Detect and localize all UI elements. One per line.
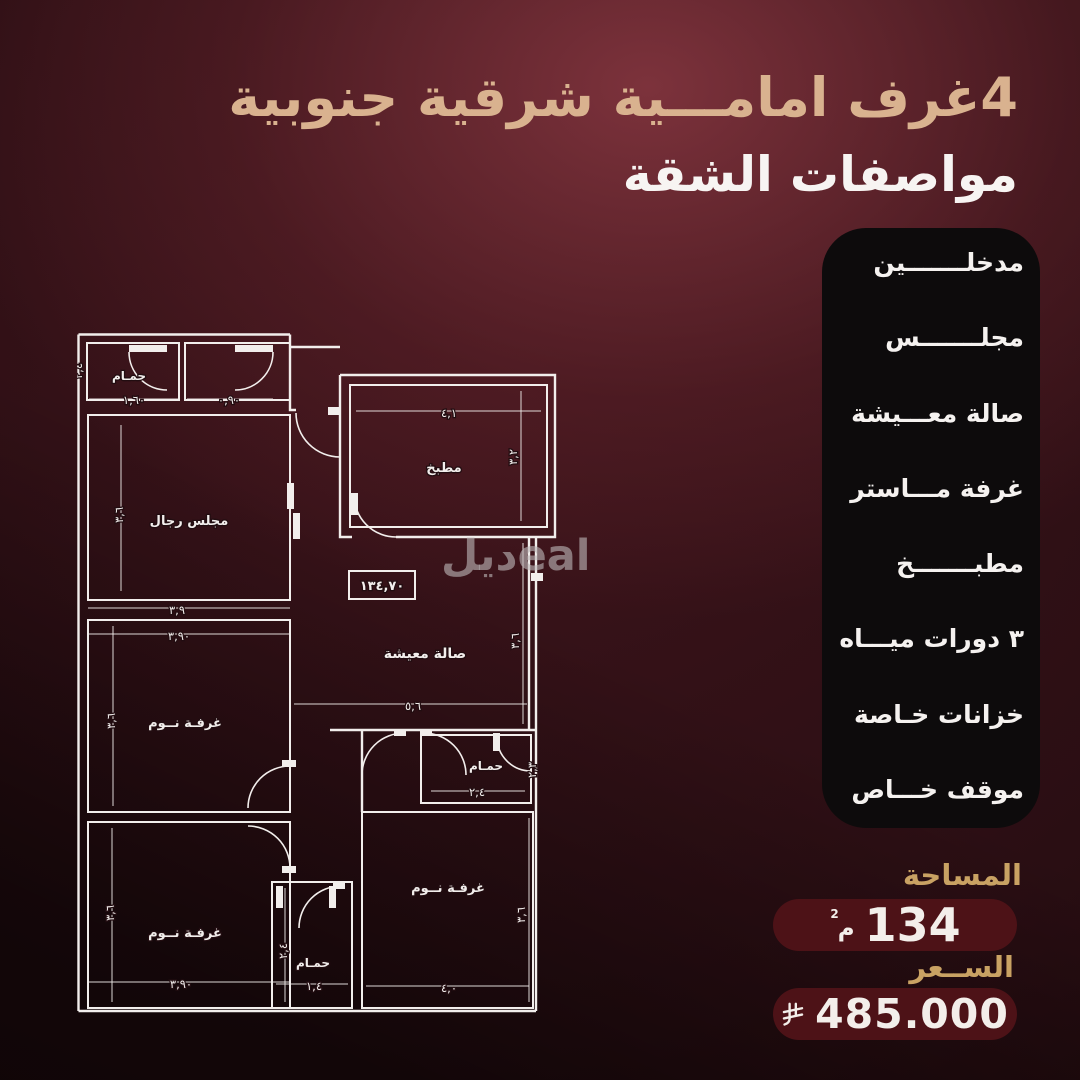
dim-bath_tl_h: ٢,٤ bbox=[77, 363, 85, 379]
dim-bed_br_h: ٣,٦ bbox=[514, 907, 528, 923]
wall bbox=[340, 375, 555, 537]
total-area-value: ١٣٤,٧٠ bbox=[360, 579, 405, 594]
door-leaf bbox=[493, 733, 500, 751]
door-arc bbox=[296, 413, 340, 457]
dim-bath_bm_h: ٢,٤ bbox=[276, 943, 290, 959]
price-value: 485.000 bbox=[815, 994, 1009, 1035]
features-panel: مدخلـــــــينمجلـــــــسصالة معـــيشةغرف… bbox=[822, 228, 1040, 828]
room-label-bed_bl: غرفـة نــوم bbox=[148, 926, 222, 941]
door-leaf bbox=[420, 729, 432, 736]
door-leaf bbox=[129, 345, 167, 352]
dim-bath_br_h: ٢,٣ bbox=[525, 762, 539, 778]
area-unit: م2 bbox=[829, 916, 854, 942]
door-leaf bbox=[235, 345, 273, 352]
feature-item: مطبـــــــخ bbox=[838, 549, 1024, 578]
room-label-bed_br: غرفـة نــوم bbox=[411, 881, 485, 896]
door-arc bbox=[248, 766, 290, 808]
dim-bath_br_w: ٢,٤ bbox=[469, 785, 485, 799]
door-leaf bbox=[293, 513, 300, 539]
dim-kitchen_h: ٣,٢ bbox=[506, 449, 520, 465]
feature-item: مدخلـــــــين bbox=[838, 248, 1024, 277]
dim-living_h: ٣,٦ bbox=[508, 633, 522, 649]
door-leaf bbox=[276, 886, 283, 908]
price-pill: 485.000 bbox=[773, 988, 1017, 1040]
feature-item: موقف خـــاص bbox=[838, 775, 1024, 804]
dim-bed_bl_w: ٣,٩٠ bbox=[170, 977, 192, 991]
feature-item: خزانات خـاصة bbox=[838, 700, 1024, 729]
door-leaf bbox=[328, 407, 340, 415]
feature-item: صالة معـــيشة bbox=[838, 399, 1024, 428]
page-title: 4غرف امامـــية شرقية جنوبية bbox=[228, 66, 1018, 129]
watermark-logo: ديلeal bbox=[441, 531, 591, 581]
door-leaf bbox=[287, 483, 294, 509]
dim-bed_ml_w: ٣,٩٠ bbox=[168, 629, 190, 643]
room-label-kitchen: مطبخ bbox=[426, 461, 461, 476]
feature-item: ٣ دورات ميـــاه bbox=[838, 624, 1024, 653]
dim-bath_tl_w: ١,٦٠ bbox=[123, 393, 145, 407]
floor-plan: حمـاممجلس رجالمطبخصالة معيشةغرفـة نــومغ… bbox=[77, 333, 557, 1013]
door-arc bbox=[424, 733, 466, 775]
room-label-living: صالة معيشة bbox=[384, 646, 466, 662]
area-label: المساحة bbox=[903, 858, 1022, 892]
saudi-riyal-icon bbox=[781, 1001, 805, 1027]
area-value: 134 bbox=[865, 902, 961, 948]
door-arc bbox=[362, 733, 404, 775]
price-label: الســعر bbox=[909, 950, 1014, 984]
room-label-bath_br: حمـام bbox=[469, 759, 503, 774]
room-label-bed_ml: غرفـة نــوم bbox=[148, 716, 222, 731]
room-label-bath_bm: حمـام bbox=[296, 956, 330, 971]
door-leaf bbox=[394, 729, 406, 736]
feature-item: مجلـــــــس bbox=[838, 323, 1024, 352]
door-leaf bbox=[282, 866, 296, 873]
feature-item: غرفة مـــاستر bbox=[838, 474, 1024, 503]
dim-majlis_h: ٣,٦ bbox=[112, 507, 126, 523]
watermark-arabic: ديل bbox=[441, 531, 518, 581]
room-label-bath_tl: حمـام bbox=[112, 369, 146, 384]
dim-bed_bl_h: ٣,٦ bbox=[103, 905, 117, 921]
poster-canvas: 4غرف امامـــية شرقية جنوبية مواصفات الشق… bbox=[0, 0, 1080, 1080]
dim-bed_ml_h: ٣,٦ bbox=[104, 713, 118, 729]
dim-closet_w: ٠,٩٠ bbox=[218, 393, 240, 407]
door-leaf bbox=[329, 886, 336, 908]
door-arc bbox=[235, 352, 273, 390]
dim-living_w: ٥,٦ bbox=[405, 699, 421, 713]
dim-bed_br_w: ٤,٠ bbox=[441, 981, 457, 995]
room-label-majlis: مجلس رجال bbox=[150, 514, 229, 529]
door-leaf bbox=[350, 493, 358, 515]
door-arc bbox=[354, 495, 396, 537]
watermark-latin: eal bbox=[518, 531, 591, 581]
dim-kitchen_w: ٤,١ bbox=[441, 406, 457, 420]
door-leaf bbox=[282, 760, 296, 767]
dim-bath_bm_w: ١,٤ bbox=[306, 979, 322, 993]
room-bed_br bbox=[362, 812, 533, 1008]
area-pill: م2 134 bbox=[773, 899, 1017, 951]
page-subtitle: مواصفات الشقة bbox=[623, 146, 1018, 203]
door-arc bbox=[248, 826, 290, 868]
dim-majlis_w: ٣,٩ bbox=[169, 603, 185, 617]
